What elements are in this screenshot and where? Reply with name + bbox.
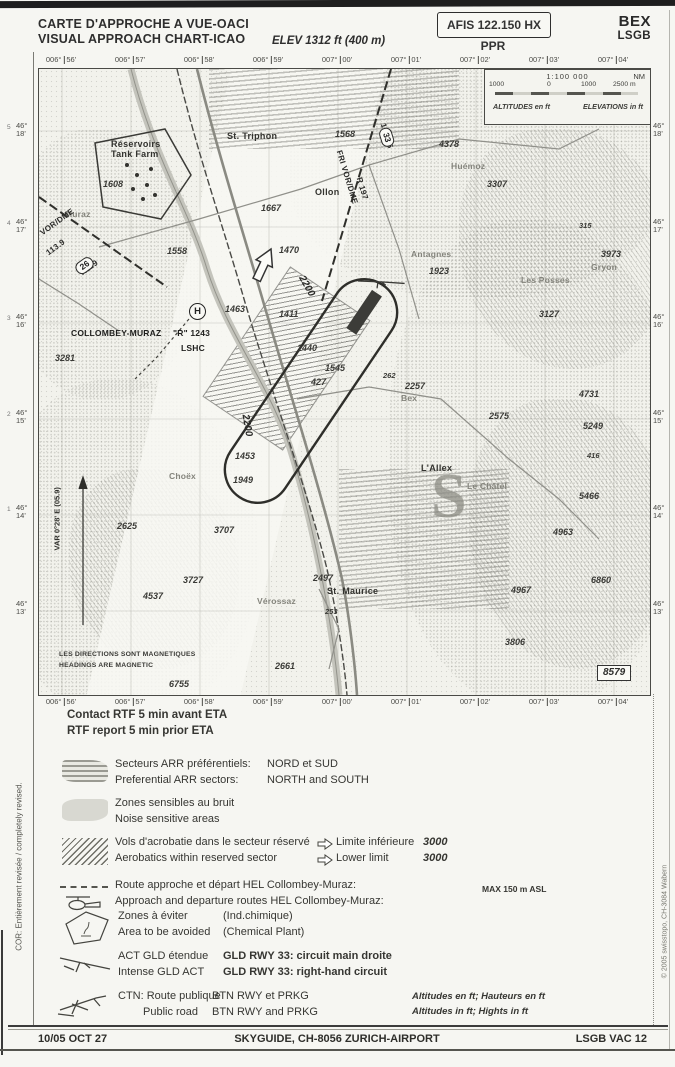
latitude-label: 46°13' — [16, 600, 27, 616]
longitude-label: 007°00' — [322, 55, 352, 64]
longitude-label: 006°58' — [184, 55, 214, 64]
map-label: 1558 — [167, 246, 187, 256]
longitude-label: 006°57' — [115, 55, 145, 64]
longitude-label: 007°03' — [529, 697, 559, 706]
footer-publisher: SKYGUIDE, CH-8056 ZURICH-AIRPORT — [234, 1033, 439, 1045]
footer-doc-id: LSGB VAC 12 — [576, 1033, 647, 1045]
map-label: Réservoirs — [111, 139, 161, 149]
longitude-label: 007°04' — [598, 55, 628, 64]
longitude-label: 007°03' — [529, 55, 559, 64]
legend-r6-val-en: GLD RWY 33: right-hand circuit — [223, 966, 387, 978]
legend-r3-value: 3000 — [423, 836, 447, 848]
map-label: LES DIRECTIONS SONT MAGNETIQUES — [59, 651, 195, 658]
ppr-label: PPR — [437, 39, 549, 53]
map-label: 4378 — [439, 139, 459, 149]
chart-title-en: VISUAL APPROACH CHART-ICAO — [38, 32, 249, 47]
latitude-label: 346°16' — [16, 313, 27, 329]
map-label: 262 — [383, 371, 396, 380]
legend-r1-val-fr: NORD et SUD — [267, 758, 338, 770]
legend-r5-val-fr: (Ind.chimique) — [223, 910, 293, 922]
map-label: 2661 — [275, 661, 295, 671]
scale-bar-label: 1000 — [581, 81, 596, 88]
legend-r1-val-en: NORTH and SOUTH — [267, 774, 369, 786]
longitude-label: 007°01' — [391, 697, 421, 706]
airport-code: BEX LSGB — [617, 13, 651, 42]
map-label: 1949 — [233, 475, 253, 485]
map-label: 1470 — [279, 245, 299, 255]
legend-r6-val-fr: GLD RWY 33: circuit main droite — [223, 950, 392, 962]
map-label: 1440 — [297, 343, 317, 353]
map-label: Gryon — [591, 262, 617, 272]
legend-r3-en: Aerobatics within reserved sector — [115, 852, 277, 864]
map-label: 4537 — [143, 591, 163, 601]
map-label: LSHC — [181, 343, 205, 353]
map-label: 5466 — [579, 491, 599, 501]
legend-r2-fr: Zones sensibles au bruit — [115, 797, 234, 809]
longitude-label: 006°56' — [46, 55, 76, 64]
map-label: 3281 — [55, 353, 75, 363]
legend-r1-en: Preferential ARR sectors: — [115, 774, 239, 786]
chart-title: CARTE D'APPROCHE A VUE-OACI VISUAL APPRO… — [38, 17, 249, 47]
legend-r6-en: Intense GLD ACT — [118, 966, 204, 978]
longitude-label: 006°58' — [184, 697, 214, 706]
river-rhone — [131, 69, 339, 695]
legend-r7-val-en: BTN RWY and PRKG — [212, 1006, 318, 1018]
contact-note-en: RTF report 5 min prior ETA — [67, 725, 214, 737]
elevation-label: ELEV 1312 ft (400 m) — [272, 35, 385, 47]
legend-r3-fr: Vols d'acrobatie dans le secteur réservé — [115, 836, 310, 848]
helipad-symbol: H — [189, 303, 206, 320]
latitude-label: 546°18' — [16, 122, 27, 138]
map-label: 416 — [587, 451, 600, 460]
glider-icon — [56, 948, 116, 976]
longitude-label: 006°59' — [253, 697, 283, 706]
latitude-label: 46°16' — [653, 313, 664, 329]
scale-bar-label: 1000 — [489, 81, 504, 88]
longitude-label: 006°59' — [253, 55, 283, 64]
contact-note-fr: Contact RTF 5 min avant ETA — [67, 709, 227, 721]
latitude-label: 46°18' — [653, 122, 664, 138]
longitude-label: 007°00' — [322, 697, 352, 706]
copyright-note: © 2005 swisstopo, CH-3084 Wabern — [662, 777, 669, 1067]
map-label: COLLOMBEY-MURAZ — [71, 328, 161, 338]
map-label: 3973 — [601, 249, 621, 259]
legend-r3-value: 3000 — [423, 852, 447, 864]
legend-r7-val-fr: BTN RWY et PRKG — [212, 990, 309, 1002]
chart-title-fr: CARTE D'APPROCHE A VUE-OACI — [38, 17, 249, 32]
latitude-label: 446°17' — [16, 218, 27, 234]
map-label: 4963 — [553, 527, 573, 537]
footer-date: 10/05 OCT 27 — [38, 1033, 107, 1045]
longitude-label: 007°04' — [598, 697, 628, 706]
latitude-label: 46°17' — [653, 218, 664, 234]
airport-code-icao: LSGB — [617, 30, 651, 42]
map-label: 4967 — [511, 585, 531, 595]
tank-farm-dots — [125, 163, 157, 201]
map-label: 1453 — [235, 451, 255, 461]
map-label: Le Châtel — [467, 481, 507, 491]
latitude-label: 46°13' — [653, 600, 664, 616]
variation-arrow — [79, 477, 87, 625]
scan-edge-top — [0, 0, 675, 8]
map-label: Bex — [401, 393, 417, 403]
map-label: 1568 — [335, 129, 355, 139]
map-label: Ollon — [315, 187, 340, 197]
longitude-label: 006°57' — [115, 697, 145, 706]
map-label: Les Posses — [521, 275, 570, 285]
map-label: Vérossaz — [257, 596, 296, 606]
legend-r1-fr: Secteurs ARR préférentiels: — [115, 758, 251, 770]
legend-r6-fr: ACT GLD étendue — [118, 950, 208, 962]
map-label: 1923 — [429, 266, 449, 276]
latitude-label: 146°14' — [16, 504, 27, 520]
map-label: 1667 — [261, 203, 281, 213]
legend-r4-en: Approach and departure routes HEL Collom… — [115, 895, 384, 907]
longitude-label: 007°02' — [460, 55, 490, 64]
latitude-label: 46°15' — [653, 409, 664, 425]
frame-left-line — [33, 52, 34, 1025]
legend-r4-fr: Route approche et départ HEL Collombey-M… — [115, 879, 356, 891]
altitudes-label: ALTITUDES en ft — [493, 102, 550, 111]
map-label: 1545 — [325, 363, 345, 373]
scale-bar-label: 2500 m — [613, 81, 636, 88]
map-label: 2497 — [313, 573, 333, 583]
side-note-left: COR: Entièrement revisée / completely re… — [15, 722, 24, 1012]
page-edge-right — [669, 10, 670, 1050]
legend-r5-val-en: (Chemical Plant) — [223, 926, 304, 938]
legend-r5-fr: Zones à éviter — [118, 910, 188, 922]
legend-r4-max: MAX 150 m ASL — [482, 884, 546, 894]
scale-ratio: 1:100 000 — [485, 72, 650, 81]
map-label: 4731 — [579, 389, 599, 399]
map-label: 3307 — [487, 179, 507, 189]
legend-r7-fr: CTN: Route publique — [118, 990, 221, 1002]
map-label: Tank Farm — [111, 149, 159, 159]
airport-code-name: BEX — [619, 13, 651, 30]
longitude-label: 007°01' — [391, 55, 421, 64]
legend-r3-lim-en: Lower limit — [336, 852, 389, 864]
map-label: 253 — [325, 607, 338, 616]
aerobatics-swatch — [62, 838, 108, 865]
map-label: 2625 — [117, 521, 137, 531]
map-label: 6860 — [591, 575, 611, 585]
footer-rule-thin — [8, 1029, 668, 1030]
scale-bar-label: 0 — [547, 81, 551, 88]
afis-frequency-box: AFIS 122.150 HX — [437, 12, 551, 38]
map-label: HEADINGS ARE MAGNETIC — [59, 662, 153, 669]
map-label: 3806 — [505, 637, 525, 647]
airplane-icon — [54, 986, 116, 1020]
heli-route-swatch — [60, 886, 108, 888]
scan-edge-left — [1, 930, 3, 1055]
map-label: S — [431, 459, 467, 533]
map-label: Antagnes — [411, 249, 451, 259]
noise-zone-swatch — [62, 799, 108, 821]
map-label: 315 — [579, 221, 592, 230]
arrow-right-icon — [317, 854, 333, 866]
frame-number-box: 8579 — [597, 665, 631, 681]
map-label: 1411 — [279, 309, 298, 319]
latitude-label: 46°14' — [653, 504, 664, 520]
footer-rule — [8, 1025, 668, 1027]
map-label: 6755 — [169, 679, 189, 689]
arrow-right-icon — [317, 838, 333, 850]
legend-r5-en: Area to be avoided — [118, 926, 210, 938]
legend-r7-en: Public road — [143, 1006, 198, 1018]
map-label: 3127 — [539, 309, 559, 319]
longitude-label: 007°02' — [460, 697, 490, 706]
map-label: 2575 — [489, 411, 509, 421]
map-label: 5249 — [583, 421, 603, 431]
elevations-label: ELEVATIONS in ft — [583, 102, 643, 111]
map-label: Huémoz — [451, 161, 485, 171]
scale-unit: NM — [633, 72, 645, 81]
map-label: St. Triphon — [227, 131, 277, 141]
map-label: Choëx — [169, 471, 196, 481]
latitude-label: 246°15' — [16, 409, 27, 425]
legend-r7-right-en: Altitudes in ft; Hights in ft — [412, 1006, 528, 1017]
map-label: 3707 — [214, 525, 234, 535]
map-label: "R" 1243 — [173, 328, 210, 338]
legend-r2-en: Noise sensitive areas — [115, 813, 220, 825]
map-label: VAR 0°28' E (05.9) — [53, 487, 62, 550]
scale-bar — [495, 92, 638, 95]
arr-sector-swatch — [62, 760, 108, 782]
map-label: 1608 — [103, 179, 123, 189]
page-bottom-edge — [0, 1049, 675, 1051]
map-label: 3727 — [183, 575, 203, 585]
map-label: St. Maurice — [327, 586, 378, 596]
map-label: 2257 — [405, 381, 425, 391]
runway — [346, 290, 382, 335]
frame-right-line — [653, 694, 654, 1025]
map-label: 1463 — [225, 304, 245, 314]
chemical-plant-icon — [58, 908, 114, 948]
map-area[interactable]: RéservoirsTank Farm1608St. Triphon1568Ol… — [38, 68, 651, 696]
map-label: 427 — [311, 377, 326, 387]
longitude-label: 006°56' — [46, 697, 76, 706]
scale-box: 1:100 000 NM 1000 0 1000 2500 m ALTITUDE… — [484, 69, 651, 125]
legend-r3-lim-fr: Limite inférieure — [336, 836, 414, 848]
legend-r7-right-fr: Altitudes en ft; Hauteurs en ft — [412, 991, 545, 1002]
